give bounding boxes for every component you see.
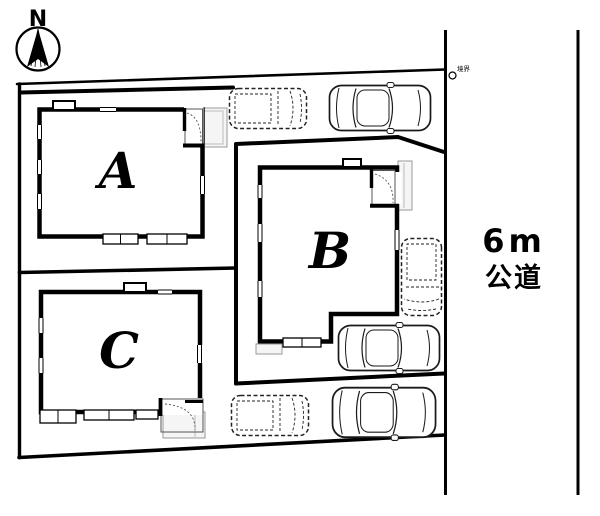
road: 6m 公道 [446, 30, 579, 495]
building-b-label: B [307, 221, 351, 280]
building-a-label: A [95, 141, 138, 200]
site-boundary-north [17, 70, 445, 85]
boundary-marker: 境界 [449, 64, 471, 79]
car-dashed-east-icon [402, 239, 442, 316]
vent-bump [343, 159, 361, 167]
car-solid-middle-icon [339, 323, 440, 374]
plot-a-c-divider [20, 268, 237, 273]
road-width-label: 6m [482, 222, 546, 260]
site-plan-drawing: N 6m 公道 [0, 0, 600, 516]
entry-porch [201, 108, 227, 147]
car-dashed-top-icon [230, 89, 307, 129]
car-solid-top-icon [330, 83, 431, 134]
vent-bump [124, 283, 146, 292]
step [256, 344, 282, 354]
north-compass: N [17, 7, 60, 71]
entry-door [183, 107, 204, 147]
car-dashed-bottom-icon [232, 396, 309, 436]
site-boundary-south [19, 435, 445, 458]
road-name-label: 公道 [485, 262, 543, 294]
vent-bump [53, 101, 75, 110]
boundary-pin-icon [449, 72, 456, 79]
site-plan-canvas: N 6m 公道 [0, 0, 600, 516]
car-solid-bottom-icon [333, 384, 436, 440]
entry-porch [163, 412, 205, 438]
boundary-marker-label: 境界 [457, 64, 471, 73]
building-a: A [36, 101, 227, 244]
building-c: C [38, 283, 206, 438]
plot-b-south-line [236, 374, 444, 384]
plot-a-north-line [21, 88, 233, 93]
building-c-label: C [99, 321, 139, 380]
